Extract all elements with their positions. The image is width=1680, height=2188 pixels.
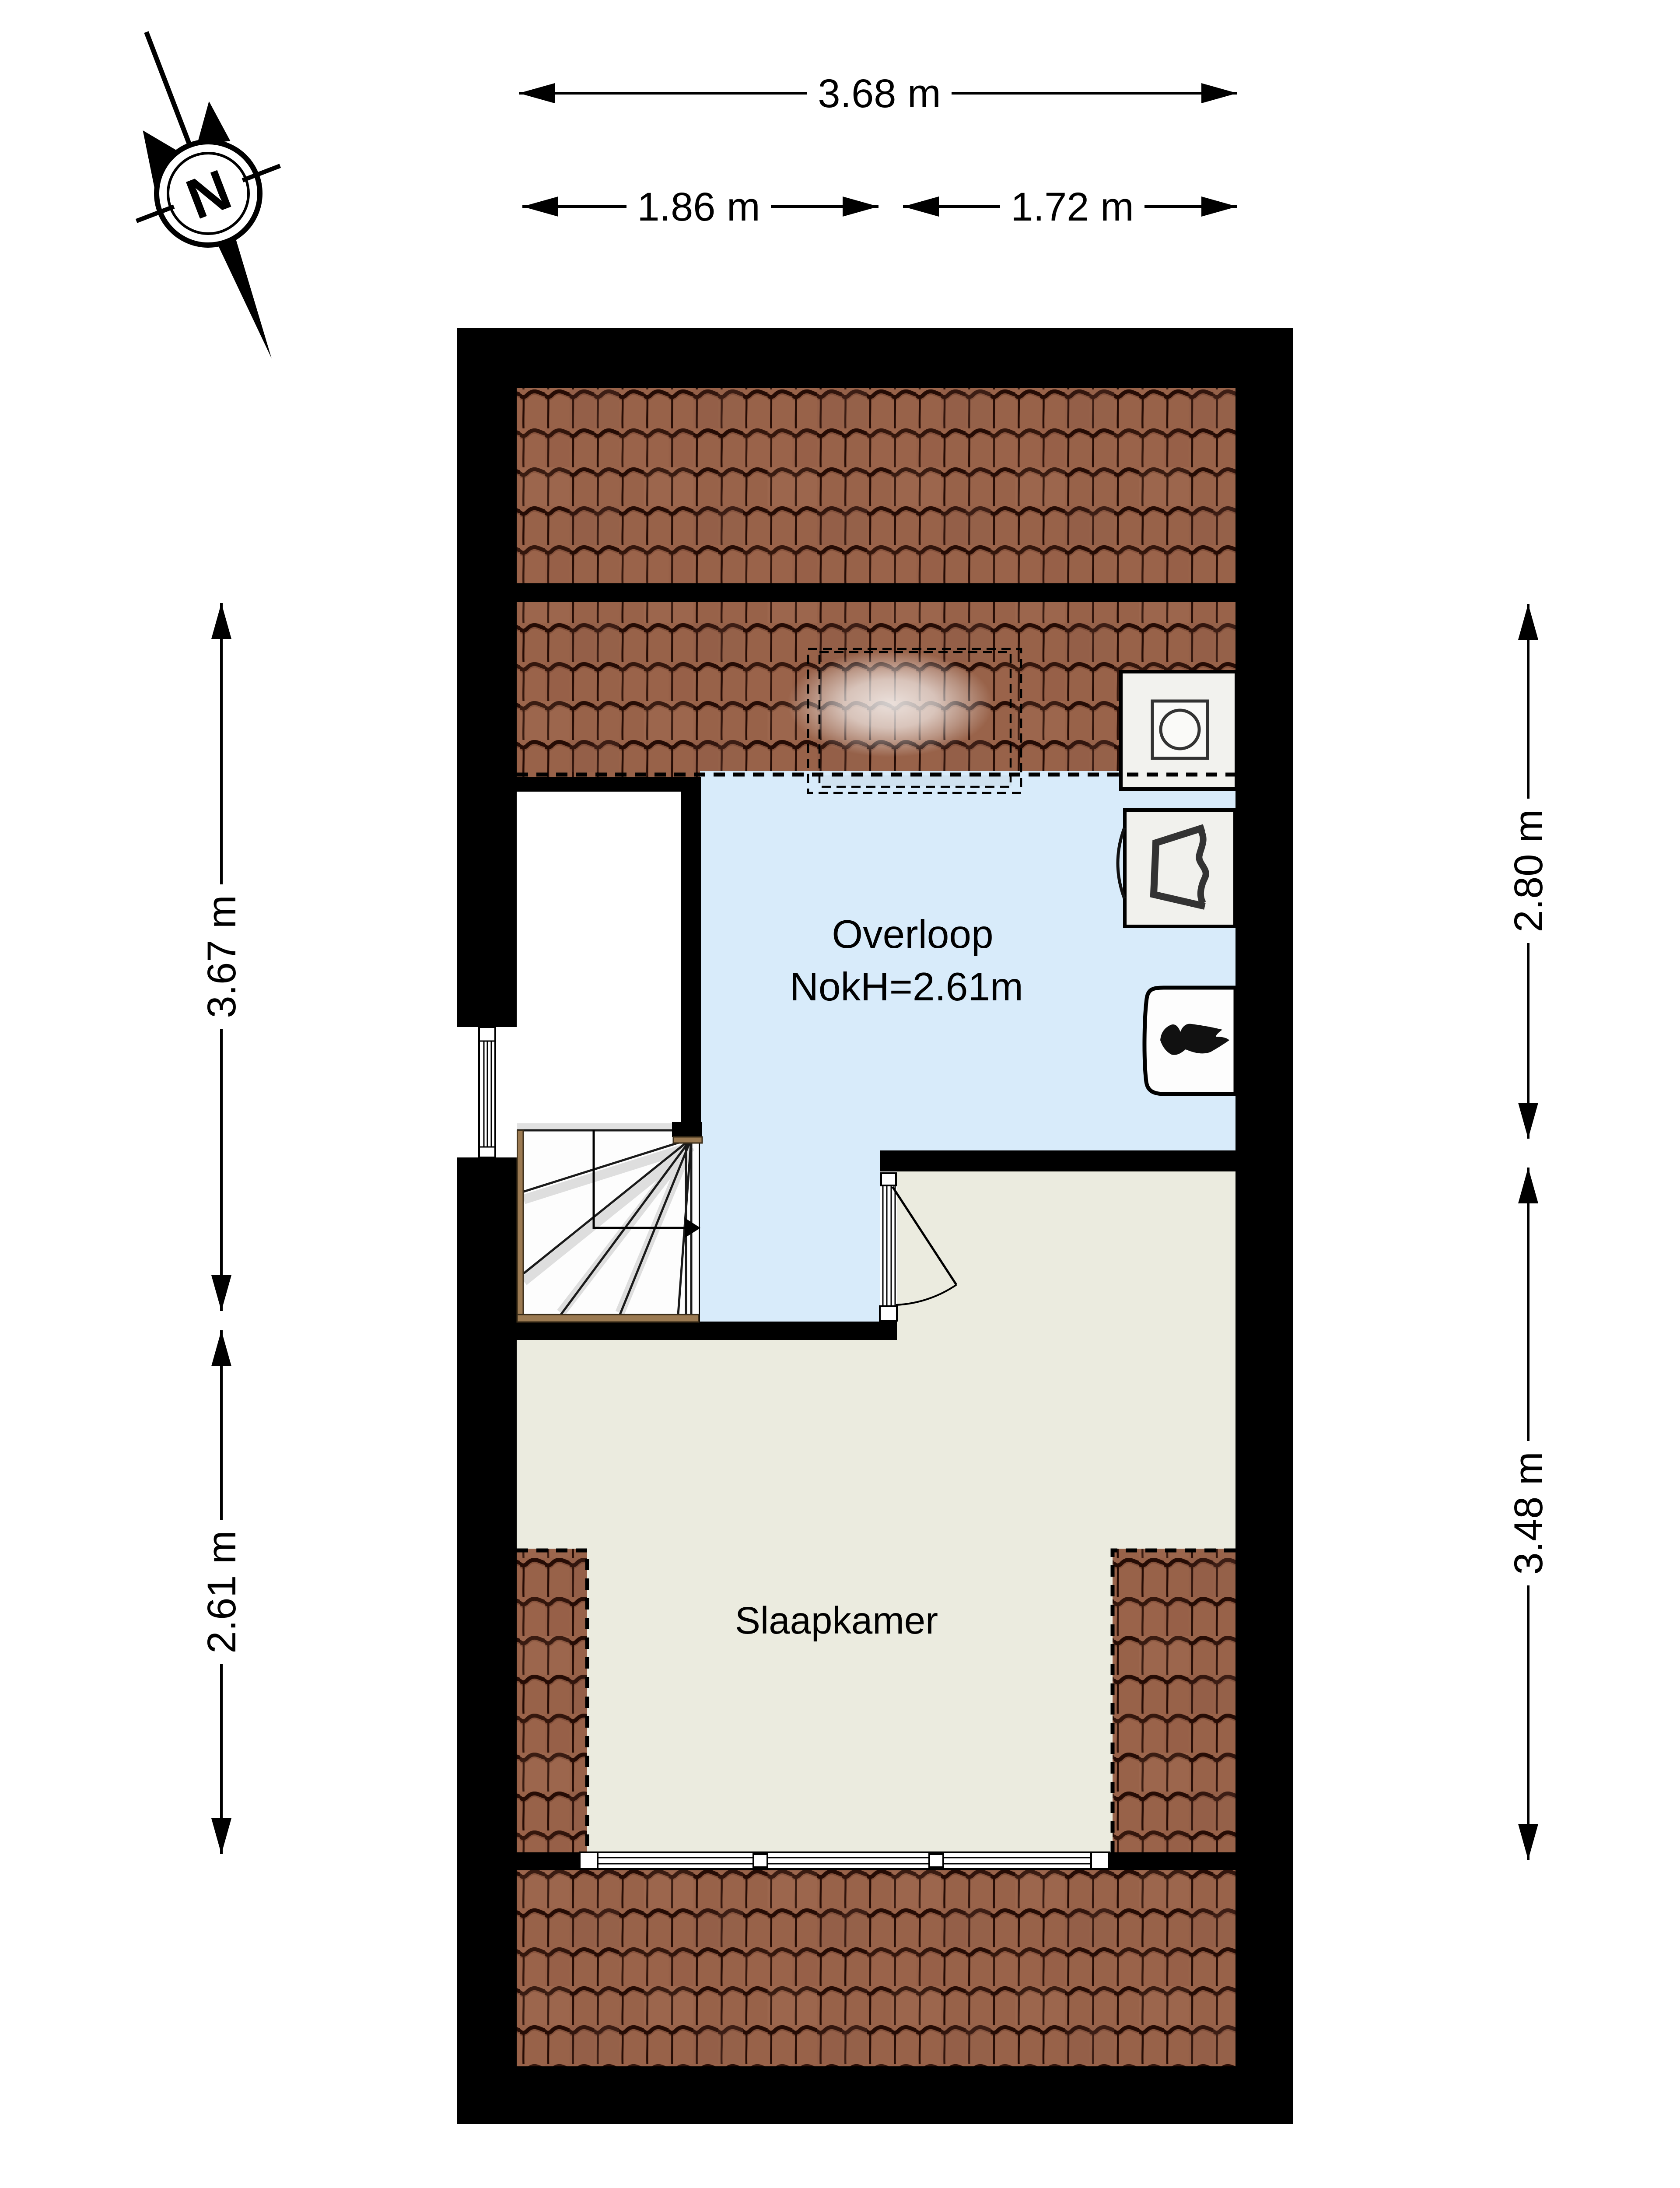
svg-text:2.80 m: 2.80 m xyxy=(1506,809,1551,932)
svg-text:1.86 m: 1.86 m xyxy=(637,185,760,229)
svg-text:NokH=2.61m: NokH=2.61m xyxy=(790,965,1023,1009)
svg-text:3.48 m: 3.48 m xyxy=(1506,1452,1551,1574)
svg-text:1.72 m: 1.72 m xyxy=(1011,185,1134,229)
svg-text:3.67 m: 3.67 m xyxy=(199,895,244,1018)
svg-text:Slaapkamer: Slaapkamer xyxy=(735,1599,938,1642)
svg-text:2.61 m: 2.61 m xyxy=(199,1530,244,1653)
svg-text:Overloop: Overloop xyxy=(832,912,993,957)
svg-text:3.68 m: 3.68 m xyxy=(818,71,941,116)
